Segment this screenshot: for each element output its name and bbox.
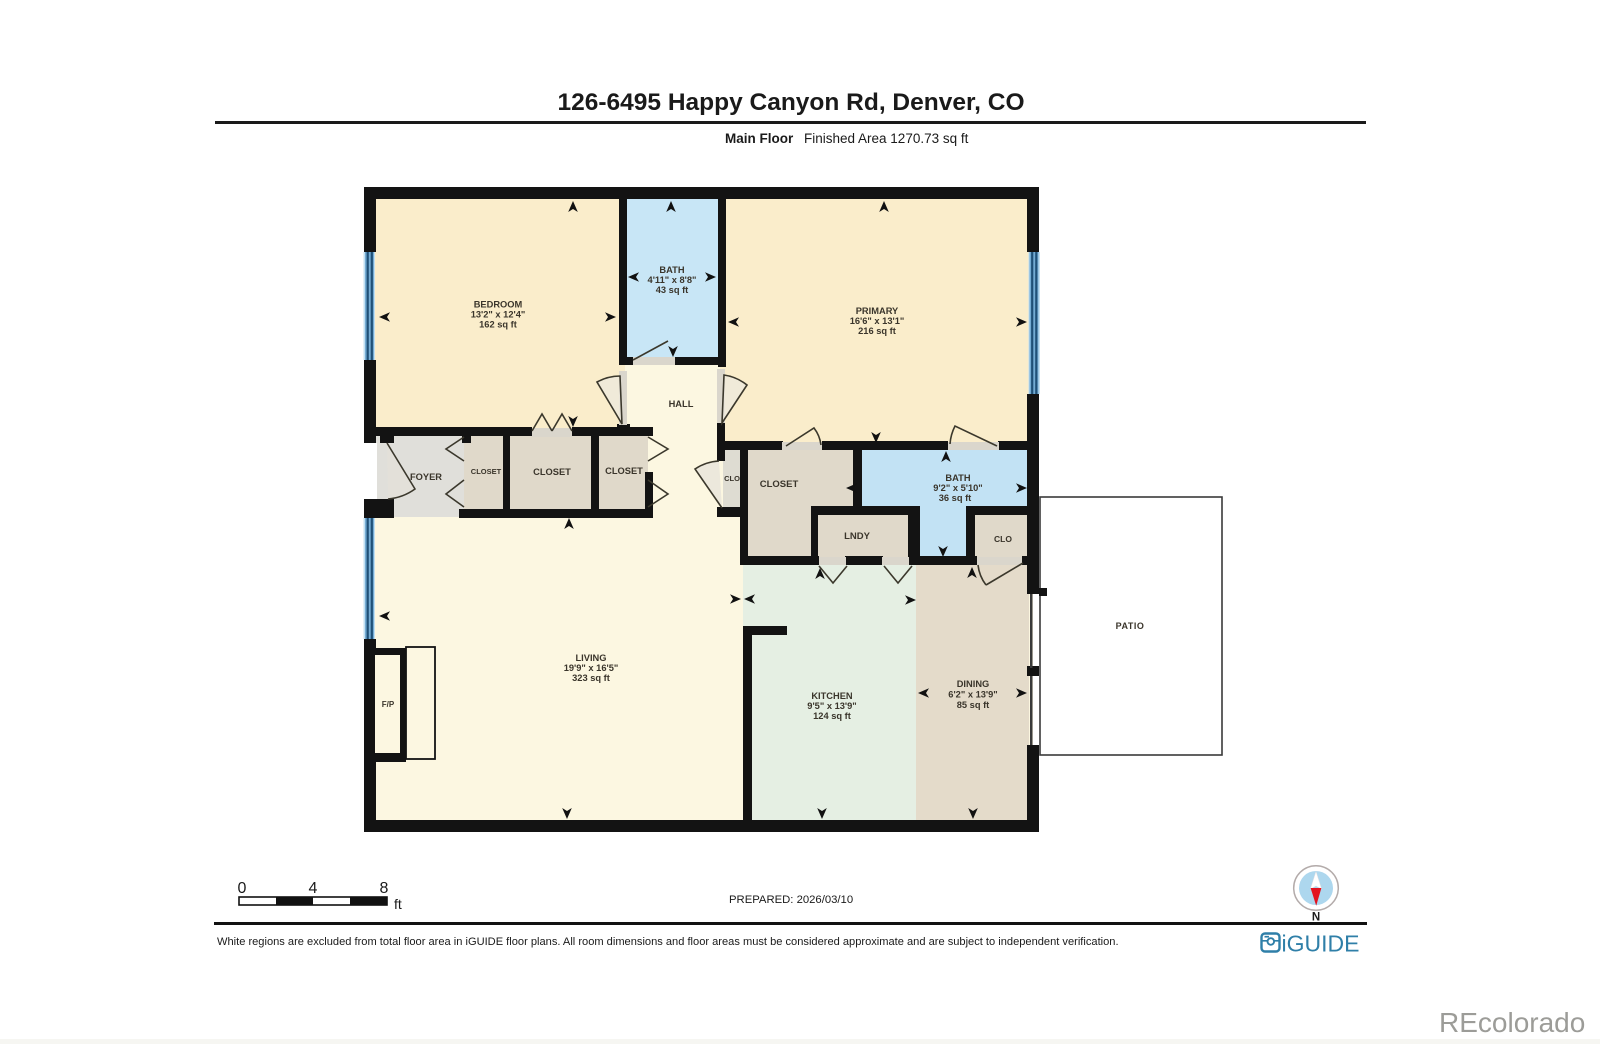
svg-text:LIVING: LIVING bbox=[576, 653, 607, 663]
svg-text:White regions are excluded fro: White regions are excluded from total fl… bbox=[217, 936, 1119, 948]
svg-text:19'9" x 16'5": 19'9" x 16'5" bbox=[564, 663, 619, 673]
svg-text:Finished Area 1270.73 sq ft: Finished Area 1270.73 sq ft bbox=[804, 131, 969, 146]
svg-text:16'6" x 13'1": 16'6" x 13'1" bbox=[850, 316, 905, 326]
svg-text:BATH: BATH bbox=[945, 473, 970, 483]
svg-text:BEDROOM: BEDROOM bbox=[474, 300, 523, 310]
svg-text:4'11" x 8'8": 4'11" x 8'8" bbox=[648, 275, 697, 285]
svg-text:REcolorado: REcolorado bbox=[1439, 1007, 1585, 1038]
svg-text:85 sq ft: 85 sq ft bbox=[957, 700, 990, 710]
svg-text:F/P: F/P bbox=[382, 700, 395, 709]
svg-text:N: N bbox=[1312, 912, 1320, 924]
svg-text:CLOSET: CLOSET bbox=[533, 467, 571, 477]
svg-text:CLOSET: CLOSET bbox=[605, 466, 643, 476]
svg-text:LNDY: LNDY bbox=[844, 531, 871, 542]
svg-text:4: 4 bbox=[309, 880, 318, 897]
svg-text:43 sq ft: 43 sq ft bbox=[656, 285, 689, 295]
svg-text:323 sq ft: 323 sq ft bbox=[572, 673, 610, 683]
svg-text:216 sq ft: 216 sq ft bbox=[858, 326, 896, 336]
svg-text:PATIO: PATIO bbox=[1116, 621, 1145, 631]
svg-text:CLOSET: CLOSET bbox=[471, 467, 502, 476]
svg-text:8: 8 bbox=[380, 880, 389, 897]
svg-text:124 sq ft: 124 sq ft bbox=[813, 711, 851, 721]
svg-text:iGUIDE: iGUIDE bbox=[1282, 931, 1360, 957]
svg-text:Main Floor: Main Floor bbox=[725, 131, 794, 146]
svg-text:9'5" x 13'9": 9'5" x 13'9" bbox=[807, 701, 856, 711]
svg-text:9'2" x 5'10": 9'2" x 5'10" bbox=[933, 483, 982, 493]
svg-text:162 sq ft: 162 sq ft bbox=[479, 320, 517, 330]
svg-text:PREPARED: 2026/03/10: PREPARED: 2026/03/10 bbox=[729, 894, 853, 906]
svg-text:CLOSET: CLOSET bbox=[760, 479, 799, 490]
svg-text:FOYER: FOYER bbox=[410, 472, 442, 482]
svg-text:126-6495 Happy Canyon Rd, Denv: 126-6495 Happy Canyon Rd, Denver, CO bbox=[557, 89, 1024, 116]
svg-text:36 sq ft: 36 sq ft bbox=[939, 493, 972, 503]
svg-text:BATH: BATH bbox=[659, 265, 684, 275]
svg-text:HALL: HALL bbox=[669, 399, 694, 409]
svg-text:CLO: CLO bbox=[724, 474, 740, 483]
svg-text:6'2" x 13'9": 6'2" x 13'9" bbox=[948, 690, 997, 700]
svg-text:DINING: DINING bbox=[957, 679, 990, 689]
svg-text:KITCHEN: KITCHEN bbox=[811, 691, 853, 701]
svg-text:CLO: CLO bbox=[994, 534, 1012, 544]
svg-text:ft: ft bbox=[394, 896, 402, 912]
svg-text:0: 0 bbox=[238, 880, 247, 897]
svg-text:PRIMARY: PRIMARY bbox=[856, 306, 899, 316]
svg-text:13'2" x 12'4": 13'2" x 12'4" bbox=[471, 310, 526, 320]
